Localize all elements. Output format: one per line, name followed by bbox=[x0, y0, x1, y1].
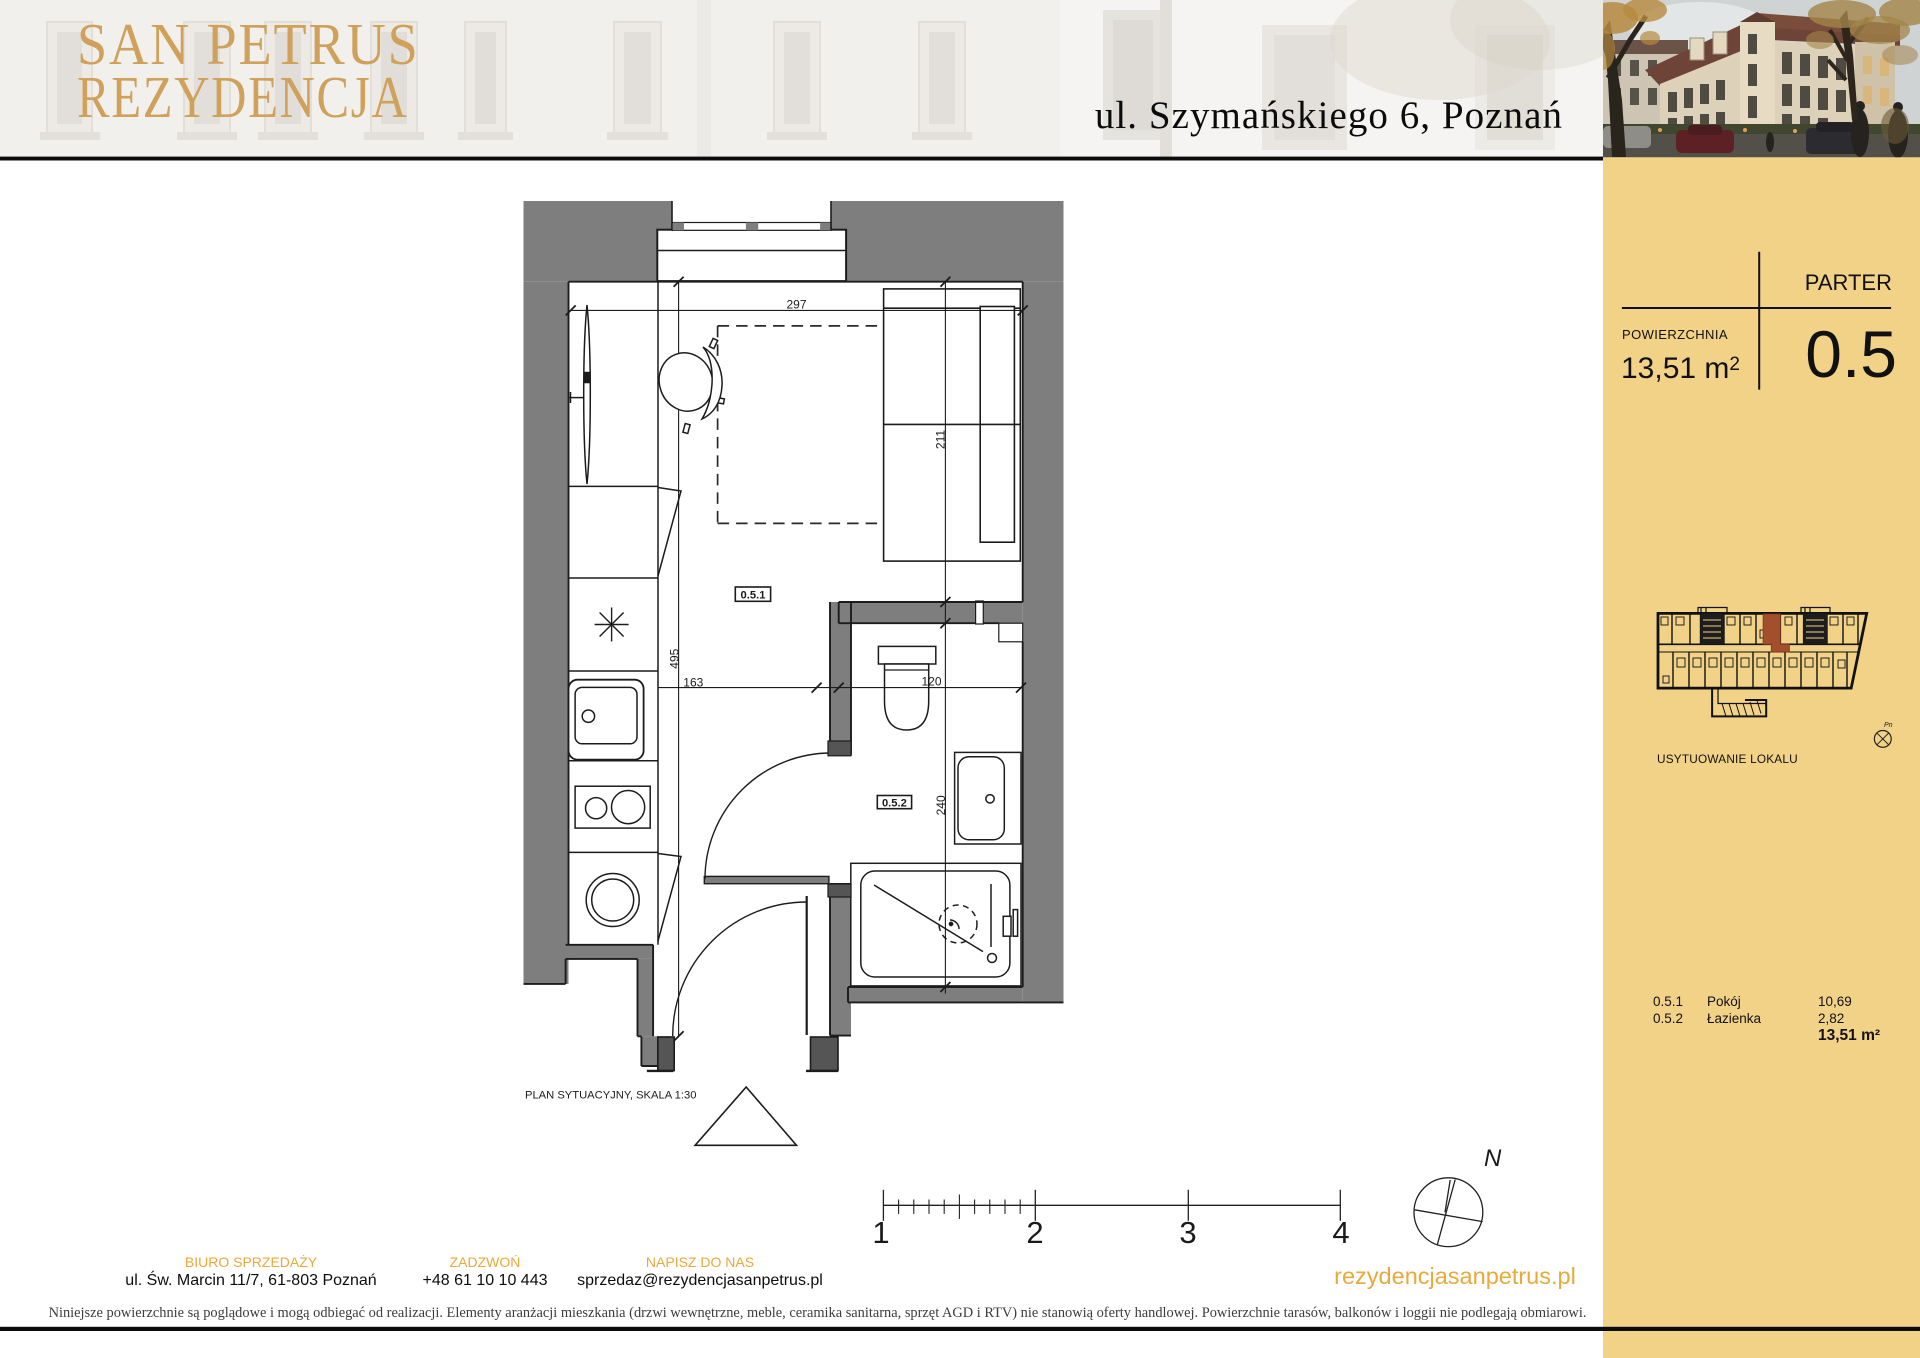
svg-text:PLAN SYTUACYJNY, SKALA 1:30: PLAN SYTUACYJNY, SKALA 1:30 bbox=[525, 1090, 696, 1102]
svg-text:2: 2 bbox=[1026, 1215, 1043, 1250]
svg-text:N: N bbox=[1484, 1145, 1502, 1172]
svg-text:211: 211 bbox=[934, 430, 948, 449]
svg-text:240: 240 bbox=[934, 795, 948, 815]
svg-text:120: 120 bbox=[921, 674, 941, 688]
svg-text:Pn: Pn bbox=[1884, 722, 1893, 729]
svg-text:0.5.1: 0.5.1 bbox=[741, 589, 766, 601]
svg-text:4: 4 bbox=[1332, 1215, 1349, 1250]
svg-text:3: 3 bbox=[1179, 1215, 1196, 1250]
svg-text:163: 163 bbox=[683, 675, 703, 689]
svg-text:1: 1 bbox=[872, 1215, 889, 1250]
svg-text:0.5.2: 0.5.2 bbox=[882, 797, 907, 809]
svg-text:297: 297 bbox=[786, 298, 806, 312]
svg-text:495: 495 bbox=[667, 648, 681, 668]
